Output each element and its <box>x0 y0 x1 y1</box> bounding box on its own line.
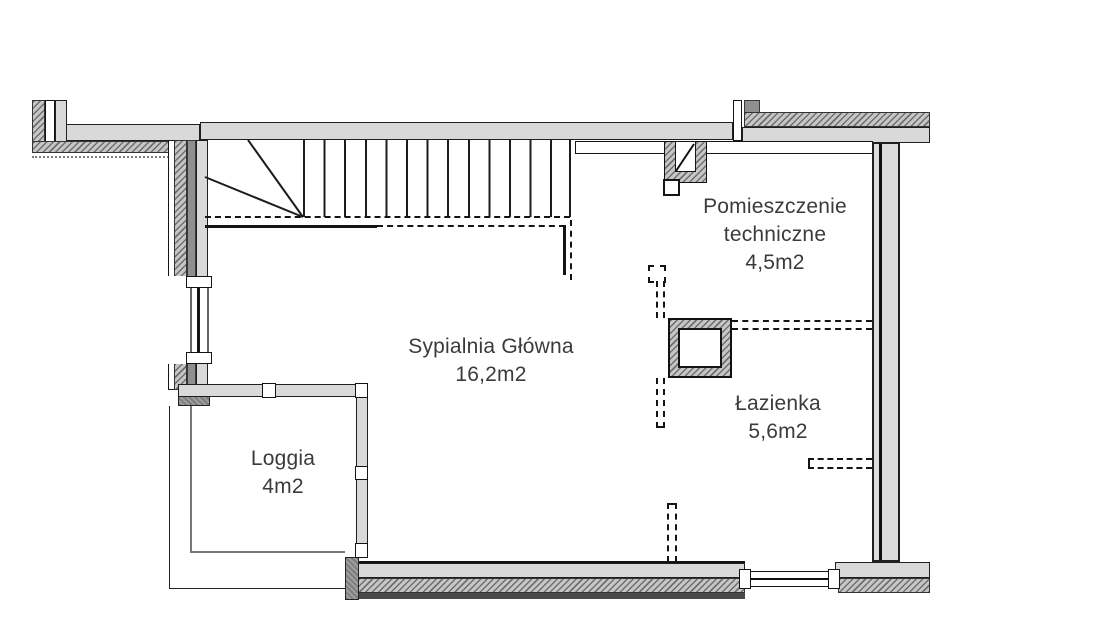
right-exterior-wall <box>872 142 900 562</box>
room-label-loggia: Loggia 4m2 <box>213 445 353 501</box>
bottomright-wall-band <box>835 562 930 578</box>
stair-opening-edge <box>563 225 566 275</box>
technical-name-line2: techniczne <box>680 221 870 249</box>
left-window-glass-line <box>197 288 200 352</box>
loggia-top-mullion <box>262 383 276 398</box>
room-label-technical: Pomieszczenie techniczne 4,5m2 <box>680 193 870 277</box>
partition-dashed-at-window <box>667 503 677 562</box>
bottom-small-window-jamb-left <box>739 569 751 589</box>
partition-dashed-bathroom-top <box>732 320 872 330</box>
bottom-glazing-band <box>345 563 745 578</box>
bedroom-area: 16,2m2 <box>380 361 602 389</box>
room-label-bathroom: Łazienka 5,6m2 <box>698 390 858 446</box>
loggia-right-mullion-bottom <box>355 543 368 558</box>
left-window-jamb-line-b <box>207 288 209 352</box>
bathroom-area: 5,6m2 <box>698 418 858 446</box>
floor-plan: Sypialnia Główna 16,2m2 Pomieszczenie te… <box>0 0 1097 617</box>
stair-cut-dashed-line <box>205 216 570 218</box>
bottom-wall-end-block <box>345 557 359 600</box>
topright-wall-insulation <box>744 112 930 127</box>
loggia-corner-mullion <box>355 383 368 398</box>
partition-dashed-bathroom-bottom <box>808 458 872 469</box>
loggia-right-mullion-mid <box>355 466 368 480</box>
bottom-small-window-jamb-right <box>828 569 840 589</box>
bottomright-wall-insulation <box>838 578 930 593</box>
topright-joint-stub <box>733 100 742 141</box>
bathroom-name: Łazienka <box>698 390 858 418</box>
stair-winder-lines <box>205 140 305 218</box>
top-exterior-wall <box>200 122 733 140</box>
bottom-small-window-glass-line <box>743 578 837 580</box>
room-label-bedroom: Sypialnia Główna 16,2m2 <box>380 333 602 389</box>
bedroom-name: Sypialnia Główna <box>380 333 602 361</box>
partition-dashed-above-shaft <box>656 281 665 318</box>
stair-landing-line <box>205 225 377 228</box>
stair-treads <box>303 140 571 217</box>
technical-name-line1: Pomieszczenie <box>680 193 870 221</box>
technical-area: 4,5m2 <box>680 249 870 277</box>
chimney-damper-line <box>664 141 707 183</box>
left-window-frame-bottom <box>186 352 212 364</box>
bottom-wall-insulation <box>345 578 745 593</box>
topleft-wall-band <box>66 124 200 141</box>
loggia-name: Loggia <box>213 445 353 473</box>
right-wall-core-line <box>879 144 882 560</box>
top-lintel-band <box>575 141 873 154</box>
partition-dashed-below-shaft <box>656 378 665 428</box>
chimney-cleanout-box <box>663 179 680 196</box>
duct-shaft-opening <box>678 328 722 368</box>
stair-opening-dashed-edge <box>570 220 572 280</box>
left-window-frame-top <box>186 276 212 288</box>
bottom-wall-sill-line <box>345 593 745 599</box>
bottom-small-window <box>742 571 838 587</box>
stair-landing-dashed-line <box>377 225 565 227</box>
loggia-area: 4m2 <box>213 473 353 501</box>
left-window-jamb-line-a <box>190 288 192 352</box>
